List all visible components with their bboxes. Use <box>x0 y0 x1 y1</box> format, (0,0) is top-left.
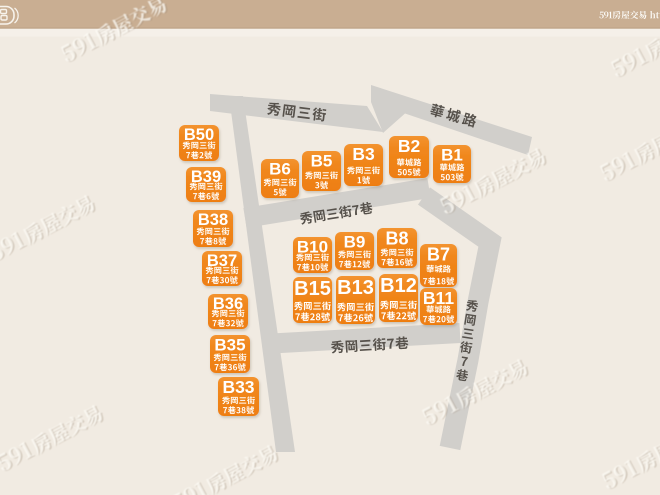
svg-text:B33: B33 <box>222 377 254 397</box>
svg-text:B7: B7 <box>427 244 450 264</box>
svg-text:B5: B5 <box>311 152 333 171</box>
svg-text:B13: B13 <box>337 277 374 299</box>
svg-text:B15: B15 <box>294 278 331 300</box>
svg-text:B6: B6 <box>269 160 291 179</box>
svg-text:B37: B37 <box>207 252 237 270</box>
svg-text:B12: B12 <box>380 275 417 297</box>
svg-text:B39: B39 <box>191 168 221 186</box>
svg-text:B3: B3 <box>352 144 375 164</box>
svg-text:B1: B1 <box>441 146 463 165</box>
svg-text:B2: B2 <box>398 136 421 156</box>
svg-text:B50: B50 <box>184 126 214 144</box>
svg-text:B11: B11 <box>423 288 454 308</box>
svg-text:B35: B35 <box>214 336 245 355</box>
svg-text:B36: B36 <box>213 295 243 313</box>
svg-text:B8: B8 <box>385 228 408 248</box>
svg-text:B9: B9 <box>344 233 366 252</box>
svg-text:B38: B38 <box>198 211 228 229</box>
